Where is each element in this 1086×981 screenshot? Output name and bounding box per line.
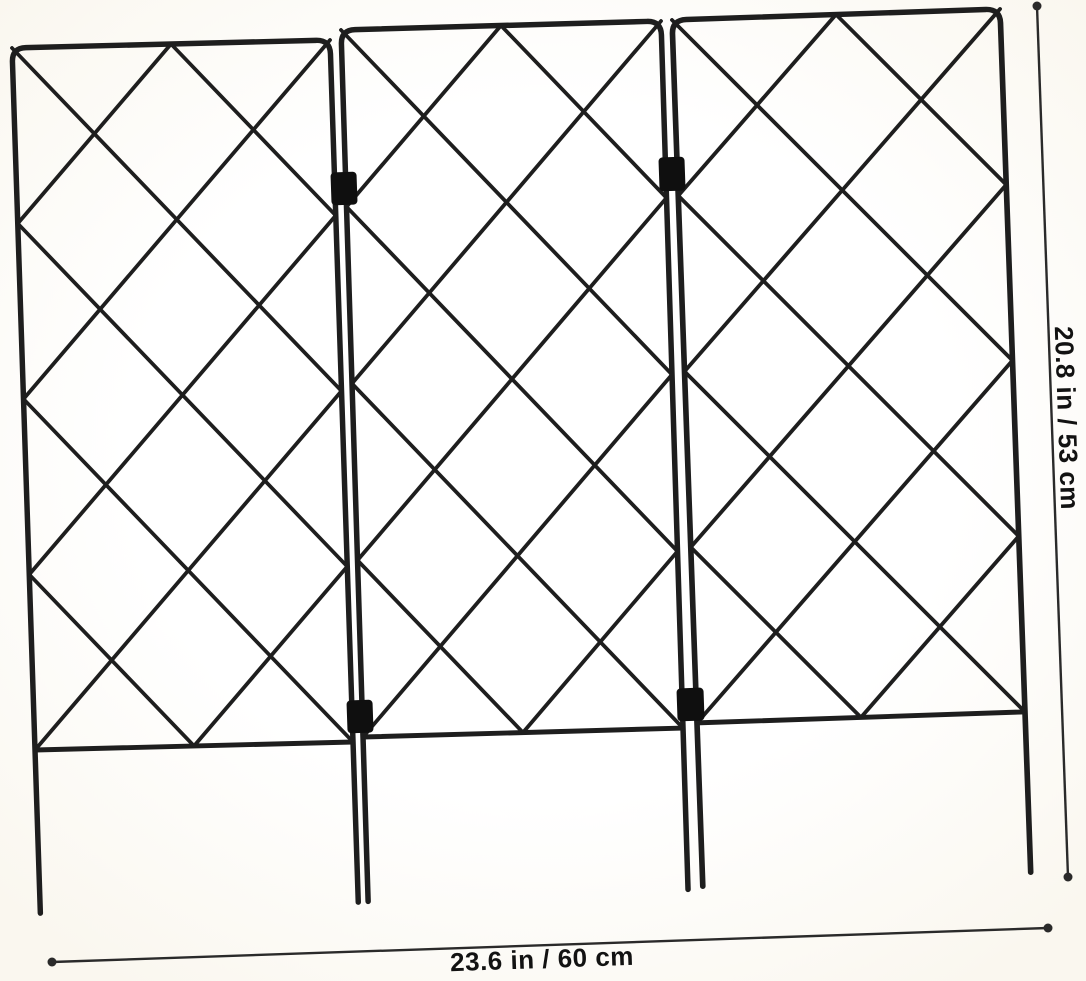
trellis-panel-left: [12, 40, 358, 913]
trellis-panel-right: [672, 9, 1031, 886]
connector-clips: [330, 157, 704, 734]
product-image: 23.6 in / 60 cm 20.8 in / 53 cm: [0, 0, 1086, 981]
trellis-illustration: [0, 0, 1086, 981]
trellis-panel-middle: [341, 21, 688, 901]
